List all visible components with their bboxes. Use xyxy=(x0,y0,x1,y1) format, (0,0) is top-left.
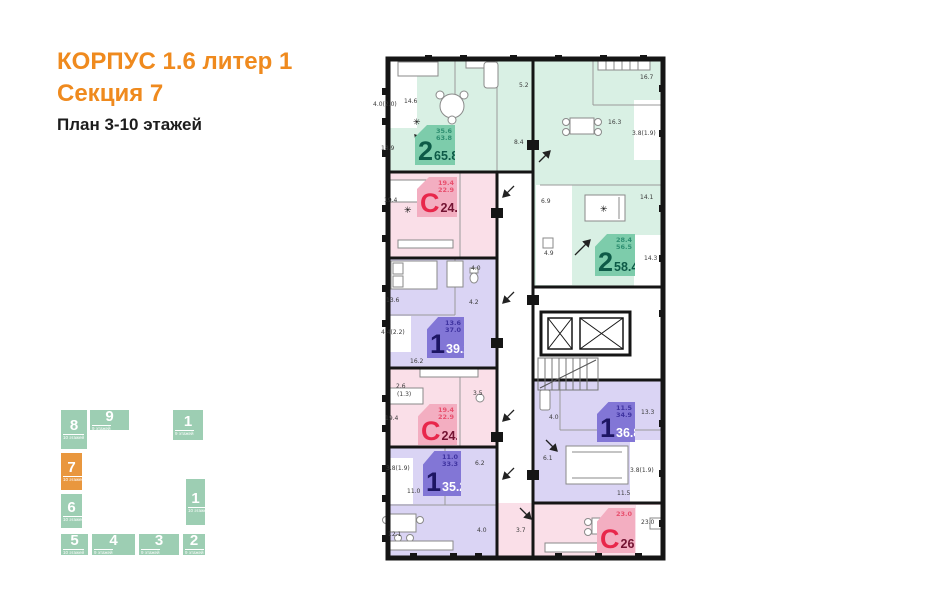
section-block-9[interactable]: 9 9 этажей xyxy=(89,409,130,431)
area-label: 13.3 xyxy=(641,410,654,416)
area-label: 3.8(1.9) xyxy=(632,131,656,137)
plant-icon: ✳ xyxy=(413,118,421,127)
area-label: 4.0 xyxy=(471,266,481,272)
area-label: 6.9 xyxy=(541,199,551,205)
area-label: 3.5 xyxy=(473,391,483,397)
badge-apt-1-36[interactable]: 11.534.9 136.8 xyxy=(597,402,635,442)
area-label: 6.2 xyxy=(475,461,485,467)
page-title-line1: КОРПУС 1.6 литер 1 xyxy=(57,48,292,76)
area-label: (1.3) xyxy=(397,392,411,398)
section-block-1-top[interactable]: 1 9 этажей xyxy=(172,409,204,441)
area-label: 14.3 xyxy=(644,256,657,262)
badge-apt-2-58[interactable]: 28.456.5 258.4 xyxy=(595,234,635,276)
area-label: 3.8(1.9) xyxy=(386,466,410,472)
section-block-3[interactable]: 3 9 этажей xyxy=(138,533,180,556)
badge-apt-s-26[interactable]: 23.0 С26.7 xyxy=(597,508,635,553)
area-label: 2.6 xyxy=(396,384,406,390)
area-label: 4.9 xyxy=(544,251,554,257)
area-label: 11.0 xyxy=(407,489,420,495)
area-label: 19.4 xyxy=(385,416,398,422)
section-block-1-right[interactable]: 1 10 этажей xyxy=(185,478,206,526)
floorplan-page: КОРПУС 1.6 литер 1 Секция 7 План 3-10 эт… xyxy=(0,0,941,600)
area-label: 14.6 xyxy=(404,99,417,105)
area-label: 16.3 xyxy=(608,120,621,126)
section-block-4[interactable]: 4 9 этажей xyxy=(91,533,136,556)
section-block-8[interactable]: 8 10 этажей xyxy=(60,409,88,450)
area-label: 16.2 xyxy=(410,359,423,365)
area-label: 5.2 xyxy=(519,83,529,89)
page-title-line2: Секция 7 xyxy=(57,80,163,108)
plant-icon: ✳ xyxy=(404,206,412,215)
area-label: 6.1 xyxy=(543,456,553,462)
area-label: 19.4 xyxy=(384,198,397,204)
area-label: 4.0 xyxy=(477,528,487,534)
area-label: 8.4 xyxy=(514,140,524,146)
area-label: 11.5 xyxy=(617,491,630,497)
badge-apt-2-65[interactable]: 35.663.8 265.8 xyxy=(415,125,455,165)
area-label: 4.0(2.0) xyxy=(373,102,397,108)
area-label: 4.2 xyxy=(469,300,479,306)
area-label: 4.0 xyxy=(549,415,559,421)
page-title-line3: План 3-10 этажей xyxy=(57,115,202,135)
area-label: 13.6 xyxy=(386,298,399,304)
section-block-5[interactable]: 5 10 этажей xyxy=(60,533,89,556)
corridor xyxy=(497,172,533,503)
balcony-right-4 xyxy=(636,505,663,558)
badge-apt-1-35[interactable]: 11.033.3 135.2 xyxy=(423,451,461,496)
plant-icon: ✳ xyxy=(600,205,608,214)
area-label: 16.7 xyxy=(640,75,653,81)
area-label: 12.1 xyxy=(388,532,401,538)
area-label: 14.1 xyxy=(640,195,653,201)
badge-apt-s-24a[interactable]: 19.422.9 С24.2 xyxy=(417,177,457,217)
section-block-6[interactable]: 6 10 этажей xyxy=(60,493,83,529)
core-lobby xyxy=(533,287,663,380)
area-label: 23.0 xyxy=(641,520,654,526)
area-label: 4.4(2.2) xyxy=(381,330,405,336)
section-block-2[interactable]: 2 9 этажей xyxy=(182,533,206,556)
badge-apt-s-24b[interactable]: 19.422.9 С24.2 xyxy=(418,404,457,445)
area-label: 18.9 xyxy=(381,146,394,152)
section-block-7-current[interactable]: 7 10 этажей xyxy=(60,452,83,491)
area-label: 3.8(1.9) xyxy=(630,468,654,474)
area-label: 3.7 xyxy=(516,528,526,534)
